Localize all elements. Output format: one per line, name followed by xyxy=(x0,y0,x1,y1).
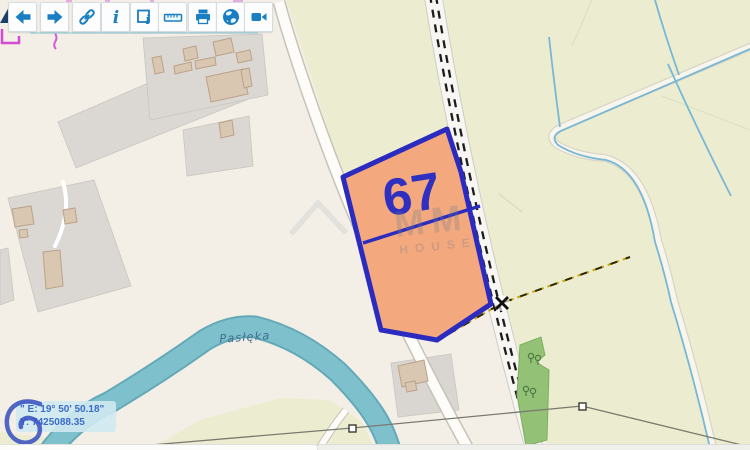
forward-button[interactable] xyxy=(40,2,69,32)
print-button[interactable] xyxy=(188,2,217,32)
ruler-icon xyxy=(163,7,183,27)
svg-text:i: i xyxy=(112,8,118,27)
link-icon xyxy=(77,7,97,27)
bottom-bar-left xyxy=(0,444,318,450)
map-application: 67 MM HOUSE Pasłęka xyxy=(0,0,750,450)
svg-text:i: i xyxy=(145,13,150,27)
spiral-logo-icon xyxy=(0,394,50,450)
printer-icon xyxy=(193,7,213,27)
video-button[interactable] xyxy=(244,2,273,32)
arrow-left-icon xyxy=(13,7,33,27)
measure-button[interactable] xyxy=(158,2,187,32)
pylon-icon xyxy=(349,425,356,432)
info-button[interactable]: i xyxy=(101,2,130,32)
globe-icon xyxy=(221,7,241,27)
pylon-icon xyxy=(579,403,586,410)
arrow-right-icon xyxy=(45,7,65,27)
info-icon: i xyxy=(106,7,126,27)
map-canvas[interactable]: 67 MM HOUSE Pasłęka xyxy=(0,0,750,450)
camera-icon xyxy=(249,7,269,27)
identify-button[interactable]: i xyxy=(130,2,159,32)
link-button[interactable] xyxy=(72,2,101,32)
globe-button[interactable] xyxy=(216,2,245,32)
back-button[interactable] xyxy=(8,2,37,32)
crossing-x-marker xyxy=(494,295,510,311)
identify-icon: i xyxy=(135,7,155,27)
bottom-bar-right xyxy=(318,444,750,450)
